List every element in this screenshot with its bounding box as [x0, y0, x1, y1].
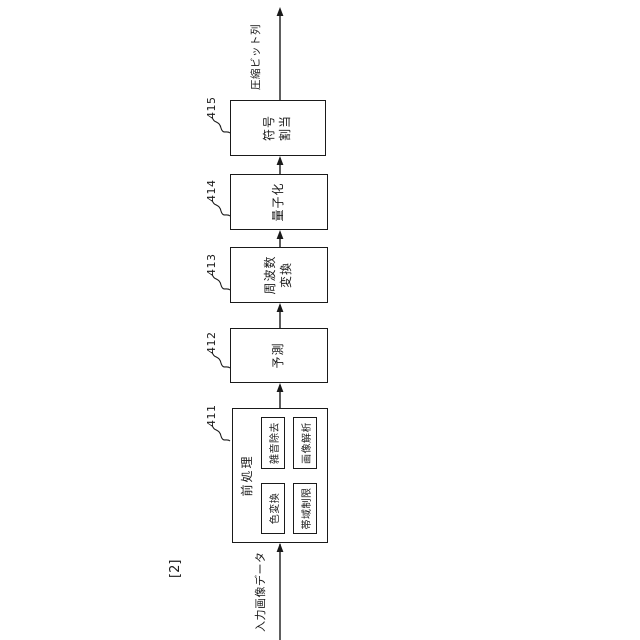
block-413-frequency-transform: 周波数変換: [230, 247, 328, 303]
arrowhead-into-411: [277, 543, 284, 552]
block-411-title: 前処理: [238, 409, 255, 542]
block-415-label: 符号割当: [262, 115, 293, 141]
figure-number: [2]: [168, 560, 183, 578]
leader-415: [212, 117, 230, 133]
block-diagram: [2] 入力画像データ 圧縮ビット列 411 412 413 414 415 前…: [0, 0, 640, 640]
refnum-415: 415: [205, 97, 218, 120]
block-414-label: 量子化: [271, 183, 287, 222]
leader-414: [212, 200, 230, 216]
leader-413: [212, 274, 230, 290]
refnum-413: 413: [205, 254, 218, 277]
arrowhead-into-415: [277, 156, 284, 165]
refnum-414: 414: [205, 180, 218, 203]
block-412-label: 予測: [271, 343, 287, 369]
block-411-preprocessing: 前処理 色変換 雑音除去 帯域制限 画像解析: [232, 408, 328, 543]
patent-figure-page: [2] 入力画像データ 圧縮ビット列 411 412 413 414 415 前…: [0, 0, 640, 640]
arrowhead-output: [277, 7, 284, 16]
subblock-noise-removal: 雑音除去: [261, 417, 285, 469]
subblock-color-conversion: 色変換: [261, 483, 285, 534]
arrowhead-into-413: [277, 303, 284, 312]
block-412-prediction: 予測: [230, 328, 328, 383]
block-415-code-assignment: 符号割当: [230, 100, 326, 156]
block-413-label: 周波数変換: [263, 256, 294, 295]
leader-411: [212, 425, 230, 441]
arrowhead-into-414: [277, 230, 284, 239]
flow-arrows: [0, 0, 640, 640]
input-label: 入力画像データ: [252, 552, 268, 633]
arrowhead-into-412: [277, 383, 284, 392]
subblock-image-analysis: 画像解析: [293, 417, 317, 469]
leader-412: [212, 352, 230, 368]
block-414-quantization: 量子化: [230, 174, 328, 230]
output-label: 圧縮ビット列: [248, 24, 263, 90]
subblock-band-limitation: 帯域制限: [293, 483, 317, 534]
refnum-411: 411: [205, 405, 218, 428]
refnum-412: 412: [205, 332, 218, 355]
